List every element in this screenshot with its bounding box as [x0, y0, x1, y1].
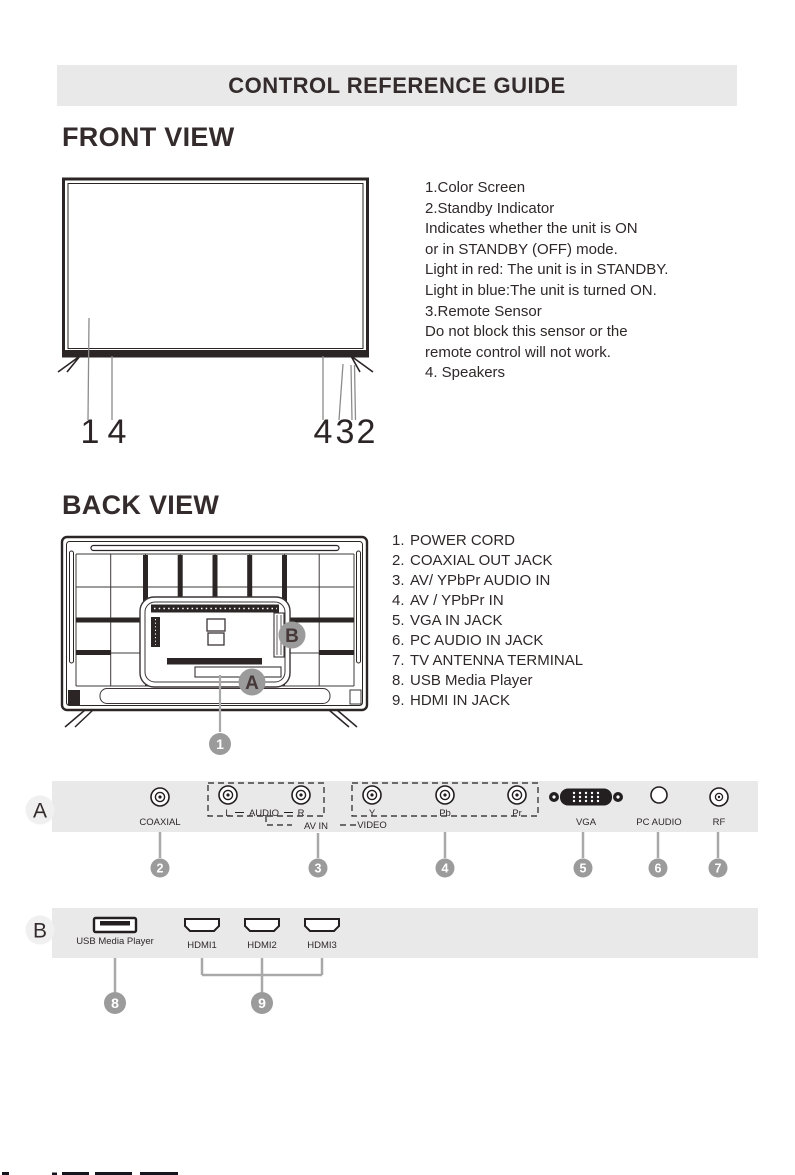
- panel-a-label: A: [33, 800, 47, 823]
- desc-line: remote control will not work.: [425, 343, 668, 364]
- svg-text:8: 8: [111, 995, 119, 1011]
- desc-line: 3.Remote Sensor: [425, 302, 668, 323]
- front-view-heading: FRONT VIEW: [62, 122, 235, 153]
- desc-line: or in STANDBY (OFF) mode.: [425, 240, 668, 261]
- svg-text:9: 9: [258, 995, 266, 1011]
- front-callout-2: 2: [357, 413, 376, 450]
- pc-audio-label: PC AUDIO: [636, 817, 681, 828]
- audio-l-jack-icon: [219, 786, 237, 804]
- front-callout-1: 1: [81, 413, 100, 450]
- panel-a-leaders: [160, 832, 718, 858]
- desc-line: 1.Color Screen: [425, 178, 668, 199]
- tv-foot-left: [58, 356, 80, 372]
- panel-a-callouts: 2 3 4 5 6 7: [151, 859, 728, 878]
- hdmi1-label: HDMI1: [187, 940, 217, 951]
- front-callout-4-right: 4: [314, 413, 333, 450]
- desc-line: Light in red: The unit is in STANDBY.: [425, 260, 668, 281]
- rf-jack-icon: [710, 788, 728, 806]
- front-callout-4-left: 4: [108, 413, 127, 450]
- audio-r-label: R: [298, 808, 305, 819]
- coaxial-label: COAXIAL: [139, 817, 180, 828]
- video-label: VIDEO: [357, 820, 387, 831]
- list-item: 3.AV/ YPbPr AUDIO IN: [392, 571, 583, 591]
- connector-panels-figure: A COAXIAL: [20, 770, 780, 1025]
- tv-foot-left: [65, 710, 93, 727]
- central-mount-area: [140, 597, 290, 687]
- list-item: 6.PC AUDIO IN JACK: [392, 631, 583, 651]
- desc-line: 2.Standby Indicator: [425, 199, 668, 220]
- rf-label: RF: [713, 817, 726, 828]
- hdmi2-label: HDMI2: [247, 940, 277, 951]
- page-title-bar: CONTROL REFERENCE GUIDE: [57, 65, 737, 106]
- panel-b-leaders: [115, 958, 322, 992]
- svg-text:3: 3: [315, 862, 322, 876]
- list-item: 4.AV / YPbPr IN: [392, 591, 583, 611]
- panel-b: B USB Media Player HDMI1 HDMI2 HDMI3: [26, 908, 759, 1014]
- tv-foot-right: [329, 710, 357, 727]
- usb-label: USB Media Player: [76, 936, 154, 947]
- callout-1-label: 1: [216, 736, 224, 752]
- audio-label: AUDIO: [249, 808, 279, 819]
- hdmi3-port-icon: [305, 919, 339, 931]
- tv-front-illustration: [58, 179, 373, 372]
- component-pb-jack-icon: [436, 786, 454, 804]
- desc-line: Do not block this sensor or the: [425, 322, 668, 343]
- scan-artifact: [0, 1169, 200, 1175]
- vesa-slot: [208, 633, 224, 645]
- svg-text:2: 2: [157, 862, 164, 876]
- vga-label: VGA: [576, 817, 597, 828]
- back-view-list: 1.POWER CORD 2.COAXIAL OUT JACK 3.AV/ YP…: [392, 531, 583, 711]
- manual-page: CONTROL REFERENCE GUIDE FRONT VIEW: [0, 0, 795, 1175]
- svg-text:5: 5: [580, 862, 587, 876]
- callout-b-label: B: [285, 626, 299, 647]
- tv-back-illustration: [62, 537, 367, 727]
- vesa-slot: [207, 619, 225, 631]
- connector-recess-a: [195, 667, 281, 677]
- back-view-figure: B A 1: [55, 525, 395, 765]
- list-item: 7.TV ANTENNA TERMINAL: [392, 651, 583, 671]
- front-view-figure: 1 4 4 3 2: [55, 170, 395, 450]
- desc-line: Indicates whether the unit is ON: [425, 219, 668, 240]
- hdmi3-label: HDMI3: [307, 940, 337, 951]
- list-item: 9.HDMI IN JACK: [392, 691, 583, 711]
- panel-a: A COAXIAL: [26, 781, 759, 878]
- list-item: 8.USB Media Player: [392, 671, 583, 691]
- back-view-heading: BACK VIEW: [62, 490, 219, 521]
- pc-audio-jack-icon: [651, 787, 667, 803]
- page-title: CONTROL REFERENCE GUIDE: [228, 73, 565, 99]
- front-callout-3: 3: [336, 413, 355, 450]
- desc-line: 4. Speakers: [425, 363, 668, 384]
- svg-text:4: 4: [442, 862, 449, 876]
- component-pb-label: Pb: [439, 808, 451, 819]
- component-pr-jack-icon: [508, 786, 526, 804]
- callout-a-label: A: [245, 673, 259, 694]
- hdmi2-port-icon: [245, 919, 279, 931]
- audio-r-jack-icon: [292, 786, 310, 804]
- coaxial-jack-icon: [151, 788, 169, 806]
- usb-port-icon: [94, 918, 136, 932]
- list-item: 5.VGA IN JACK: [392, 611, 583, 631]
- front-view-description: 1.Color Screen 2.Standby Indicator Indic…: [425, 178, 668, 384]
- hdmi1-port-icon: [185, 919, 219, 931]
- svg-text:7: 7: [715, 862, 722, 876]
- list-item: 1.POWER CORD: [392, 531, 583, 551]
- component-y-jack-icon: [363, 786, 381, 804]
- audio-l-label: L: [225, 808, 230, 819]
- panel-b-label: B: [33, 920, 47, 943]
- desc-line: Light in blue:The unit is turned ON.: [425, 281, 668, 302]
- svg-text:6: 6: [655, 862, 662, 876]
- component-pr-label: Pr: [512, 808, 522, 819]
- list-item: 2.COAXIAL OUT JACK: [392, 551, 583, 571]
- panel-b-callouts: 8 9: [104, 992, 273, 1014]
- component-y-label: Y: [369, 808, 376, 819]
- av-in-label: AV IN: [304, 821, 328, 832]
